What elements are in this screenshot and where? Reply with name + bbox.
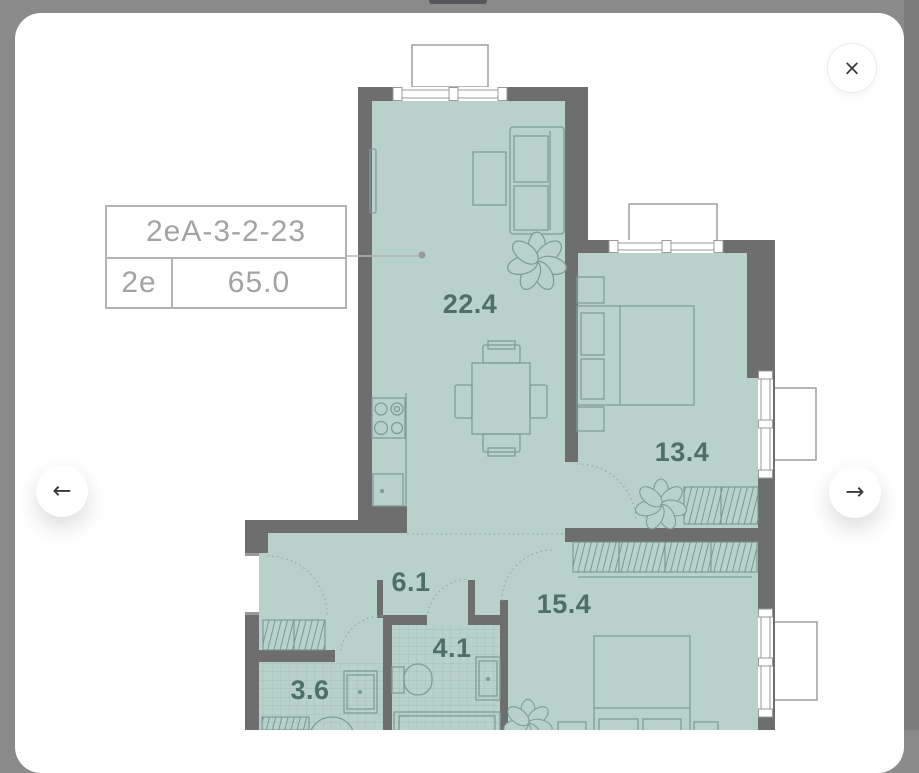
entrance-door-cap-bottom <box>245 612 259 615</box>
balcony-top <box>412 45 488 87</box>
balcony-right-low <box>773 622 817 700</box>
room-area-living-kitchen: 22.4 <box>443 289 498 319</box>
wardrobe-bedroom1 <box>684 487 758 524</box>
unit-total-area: 65.0 <box>173 259 345 307</box>
room-area-hallway: 6.1 <box>391 567 430 597</box>
entrance-door-cap-top <box>245 553 259 556</box>
floor-plan: 22.4 13.4 6.1 15.4 4.1 3.6 <box>15 13 904 730</box>
close-button[interactable]: × <box>827 43 877 93</box>
room-area-bedroom1: 13.4 <box>655 437 710 467</box>
window-living <box>393 87 507 101</box>
balcony-bedroom1 <box>629 204 717 241</box>
arrow-left-icon: ← <box>52 478 71 504</box>
room-area-bathroom: 4.1 <box>432 633 471 663</box>
wardrobe-bedroom2 <box>573 542 757 577</box>
room-fills <box>259 100 773 730</box>
prev-button[interactable]: ← <box>36 465 88 517</box>
floorplan-modal: 22.4 13.4 6.1 15.4 4.1 3.6 2eA-3-2-23 2e… <box>15 13 904 773</box>
unit-type: 2e <box>107 259 173 307</box>
close-icon: × <box>843 56 861 80</box>
unit-info-card: 2eA-3-2-23 2e 65.0 <box>105 205 347 309</box>
window-bedroom1 <box>609 240 723 253</box>
towel-rail-wc <box>262 717 309 730</box>
next-button[interactable]: → <box>829 466 881 518</box>
room-area-bedroom2: 15.4 <box>537 589 592 619</box>
arrow-right-icon: → <box>845 479 864 505</box>
room-area-wc: 3.6 <box>290 675 329 705</box>
balcony-right-mid <box>771 388 816 460</box>
window-right-mid <box>758 371 773 478</box>
window-right-low <box>758 609 773 717</box>
wardrobe-hallway <box>263 620 325 650</box>
unit-id: 2eA-3-2-23 <box>107 207 345 257</box>
background-tab-notch <box>429 0 487 4</box>
page-background-strip <box>904 0 919 730</box>
